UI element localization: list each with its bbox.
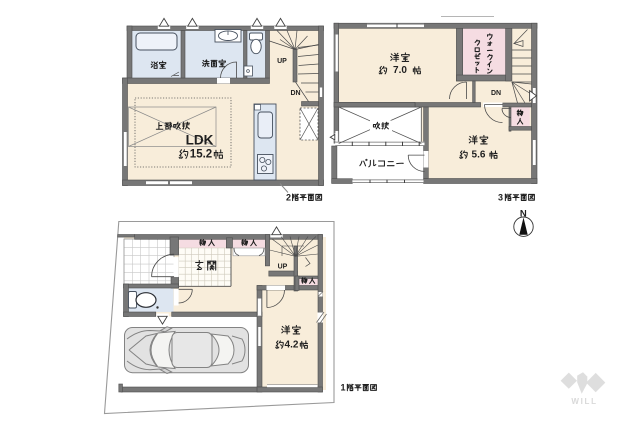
svg-text:DN: DN — [290, 90, 300, 97]
svg-text:LDK: LDK — [186, 132, 214, 147]
svg-text:5.6: 5.6 — [472, 150, 486, 161]
svg-text:1: 1 — [340, 383, 345, 393]
svg-text:WILL: WILL — [571, 397, 597, 406]
svg-text:15.2: 15.2 — [190, 149, 212, 161]
svg-text:2: 2 — [286, 192, 291, 202]
svg-text:UP: UP — [278, 263, 288, 270]
svg-text:N: N — [520, 208, 527, 219]
svg-text:3: 3 — [498, 192, 503, 202]
svg-text:4.2: 4.2 — [285, 340, 299, 351]
svg-text:DN: DN — [491, 90, 501, 97]
svg-text:7.0: 7.0 — [393, 65, 407, 76]
svg-text:UP: UP — [277, 58, 287, 65]
